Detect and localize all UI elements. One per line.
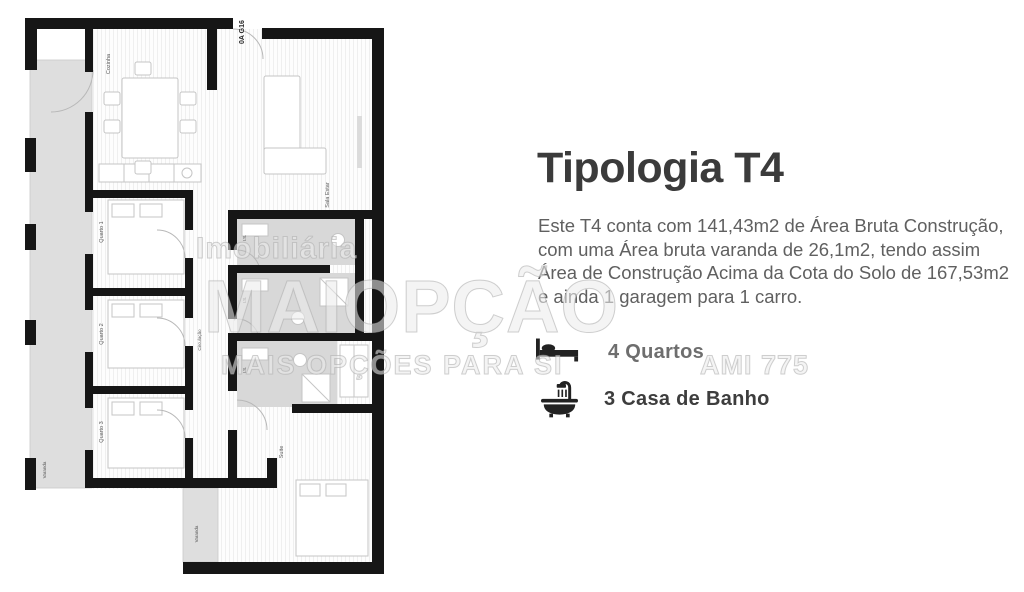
bed-bedroom3 xyxy=(108,398,184,468)
tv-sideboard xyxy=(357,116,362,168)
label-corridor: Circulação xyxy=(197,329,202,351)
label-bedroom3: Quarto 3 xyxy=(99,421,105,442)
label-balcony-left: Varanda xyxy=(42,461,47,478)
label-kitchen: Cozinha xyxy=(106,53,112,74)
feature-bedrooms: 4 Quartos xyxy=(536,338,704,367)
page-title: Tipologia T4 xyxy=(537,144,783,193)
outside-cover xyxy=(93,489,183,574)
label-living: Sala Estar xyxy=(325,182,331,208)
label-bedroom1: Quarto 1 xyxy=(99,221,105,242)
suite-closet xyxy=(340,345,368,397)
label-bath-suite: I.S. xyxy=(242,367,247,374)
description-line: Área de Construção Acima da Cota do Solo… xyxy=(538,261,1009,285)
label-suite: Suite xyxy=(279,446,285,459)
listing-image: Cozinha Quarto 1 Quarto 2 Quarto 3 Circu… xyxy=(0,0,1024,592)
bed-icon xyxy=(536,338,580,367)
description-line: com uma Área bruta varanda de 26,1m2, te… xyxy=(538,238,1009,262)
bed-bedroom1 xyxy=(108,200,184,274)
label-bath1: I.S. xyxy=(242,235,247,242)
balcony-bottom xyxy=(183,488,218,562)
bed-suite xyxy=(296,480,368,556)
label-bedroom2: Quarto 2 xyxy=(99,323,105,344)
feature-bathrooms: 3 Casa de Banho xyxy=(541,376,770,423)
bathrooms-count-label: 3 Casa de Banho xyxy=(604,388,770,411)
bathtub-icon xyxy=(541,376,578,423)
bed-bedroom2 xyxy=(108,300,184,368)
label-balcony-bottom: Varanda xyxy=(194,525,199,542)
bedrooms-count-label: 4 Quartos xyxy=(608,341,704,364)
description: Este T4 conta com 141,43m2 de Área Bruta… xyxy=(538,214,1009,308)
description-line: e ainda 1 garagem para 1 carro. xyxy=(538,285,1009,309)
balcony-left xyxy=(30,60,92,488)
unit-label: 0A G16 xyxy=(239,20,246,44)
floor-plan: Cozinha Quarto 1 Quarto 2 Quarto 3 Circu… xyxy=(0,0,430,592)
description-line: Este T4 conta com 141,43m2 de Área Bruta… xyxy=(538,214,1009,238)
label-bath2: I.S. xyxy=(242,297,247,304)
